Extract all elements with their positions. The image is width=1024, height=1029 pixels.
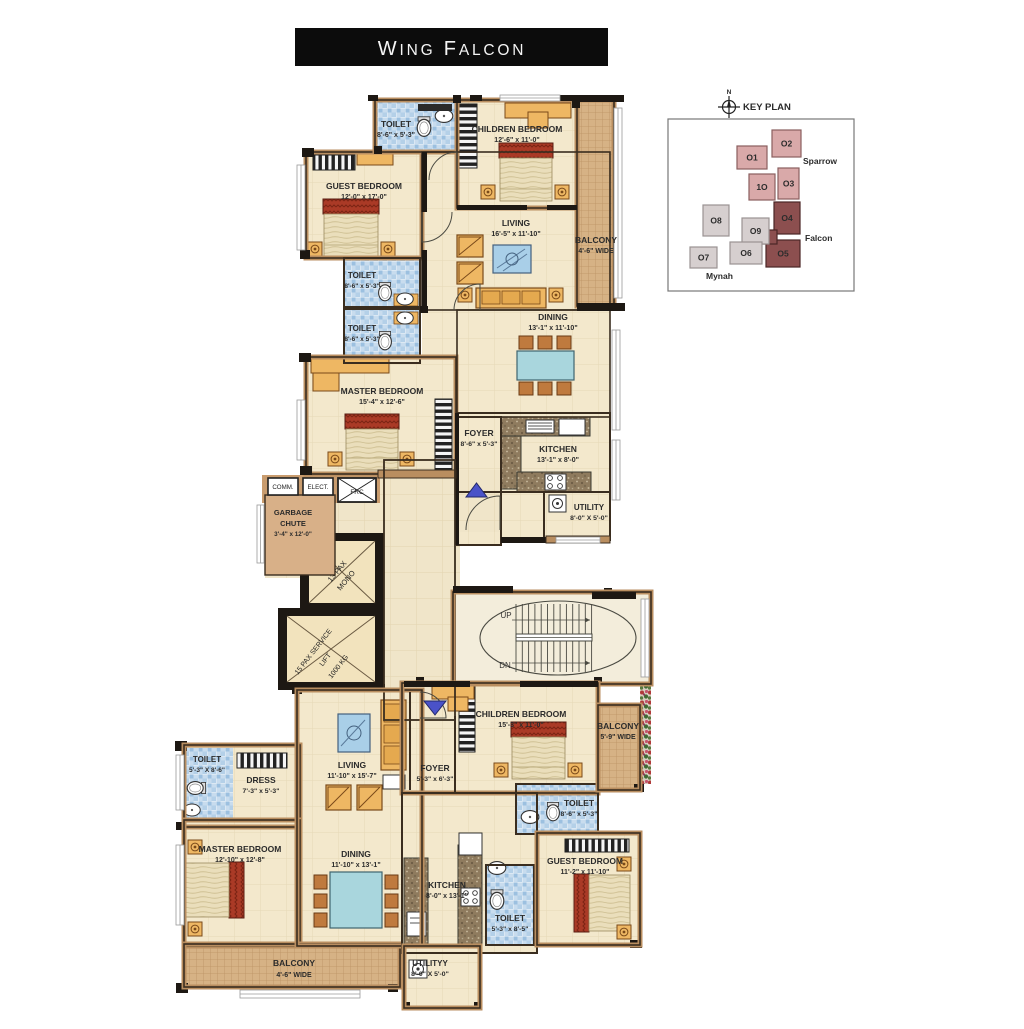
svg-text:LIVING: LIVING xyxy=(338,760,367,770)
svg-text:DINING: DINING xyxy=(341,849,371,859)
svg-text:TOILET: TOILET xyxy=(193,755,221,764)
svg-text:MASTER BEDROOM: MASTER BEDROOM xyxy=(341,386,424,396)
svg-text:FOYER: FOYER xyxy=(464,428,493,438)
svg-text:KEY PLAN: KEY PLAN xyxy=(743,102,791,113)
svg-text:UTILITY: UTILITY xyxy=(574,503,605,512)
svg-text:8'-0" x 13'-1": 8'-0" x 13'-1" xyxy=(426,893,468,900)
svg-text:O1: O1 xyxy=(746,153,758,163)
svg-text:FRC: FRC xyxy=(350,489,364,496)
svg-text:O6: O6 xyxy=(740,248,752,258)
svg-text:GUEST BEDROOM: GUEST BEDROOM xyxy=(547,856,623,866)
svg-text:11'-2" x 11'-10": 11'-2" x 11'-10" xyxy=(561,869,610,876)
svg-text:CHILDREN BEDROOM: CHILDREN BEDROOM xyxy=(472,124,563,134)
svg-text:15'-4" x 12'-6": 15'-4" x 12'-6" xyxy=(359,399,405,406)
svg-text:LIVING: LIVING xyxy=(502,218,531,228)
svg-text:11'-10" x 13'-1": 11'-10" x 13'-1" xyxy=(331,862,380,869)
svg-text:BALCONY: BALCONY xyxy=(575,235,617,245)
svg-text:TOILET: TOILET xyxy=(348,324,376,333)
svg-text:Falcon: Falcon xyxy=(805,233,832,243)
svg-text:8'-0" X 5'-0": 8'-0" X 5'-0" xyxy=(411,971,449,978)
svg-text:DRESS: DRESS xyxy=(246,775,276,785)
svg-text:KITCHEN: KITCHEN xyxy=(428,880,466,890)
svg-text:N: N xyxy=(727,89,732,96)
svg-text:DINING: DINING xyxy=(538,312,568,322)
svg-text:12'-6" x 11'-0": 12'-6" x 11'-0" xyxy=(494,137,539,144)
svg-text:8'-6" x 5'-3": 8'-6" x 5'-3" xyxy=(344,283,379,290)
svg-text:O4: O4 xyxy=(781,213,793,223)
svg-text:MASTER BEDROOM: MASTER BEDROOM xyxy=(199,844,282,854)
svg-text:FOYER: FOYER xyxy=(420,763,449,773)
svg-text:UTILITYY: UTILITYY xyxy=(412,959,448,968)
svg-text:O7: O7 xyxy=(698,253,710,263)
svg-text:7'-3" x 5'-3": 7'-3" x 5'-3" xyxy=(243,788,280,795)
svg-text:13'-1" x 11'-10": 13'-1" x 11'-10" xyxy=(528,325,577,332)
svg-text:8'-6" x 5'-3": 8'-6" x 5'-3" xyxy=(561,811,598,818)
svg-text:WING FALCON: WING FALCON xyxy=(378,38,526,60)
svg-text:16'-5" x 11'-10": 16'-5" x 11'-10" xyxy=(491,231,540,238)
svg-text:15'-3" x 11'-0": 15'-3" x 11'-0" xyxy=(498,722,543,729)
svg-text:11'-10" x 15'-7": 11'-10" x 15'-7" xyxy=(327,773,376,780)
svg-text:8'-6" x 5'-3": 8'-6" x 5'-3" xyxy=(377,132,415,139)
svg-text:8'-6" x 5'-3": 8'-6" x 5'-3" xyxy=(344,336,379,343)
svg-text:13'-1" x 8'-0": 13'-1" x 8'-0" xyxy=(537,457,579,464)
svg-text:5'-9" WIDE: 5'-9" WIDE xyxy=(600,734,636,741)
svg-text:4'-6" WIDE: 4'-6" WIDE xyxy=(578,248,614,255)
svg-text:CHUTE: CHUTE xyxy=(280,519,306,528)
svg-text:O5: O5 xyxy=(777,249,789,259)
svg-text:DN: DN xyxy=(499,661,511,670)
svg-text:BALCONY: BALCONY xyxy=(273,958,315,968)
svg-text:12'-0" x 17'-0": 12'-0" x 17'-0" xyxy=(341,194,387,201)
svg-text:GARBAGE: GARBAGE xyxy=(274,508,312,517)
svg-text:O2: O2 xyxy=(781,139,793,149)
svg-text:O3: O3 xyxy=(783,179,795,189)
svg-text:Sparrow: Sparrow xyxy=(803,156,837,166)
svg-text:TOILET: TOILET xyxy=(495,913,526,923)
svg-text:GUEST BEDROOM: GUEST BEDROOM xyxy=(326,181,402,191)
svg-text:3'-4" x 12'-0": 3'-4" x 12'-0" xyxy=(274,531,312,538)
svg-text:BALCONY: BALCONY xyxy=(597,721,639,731)
svg-text:ELECT.: ELECT. xyxy=(308,484,329,491)
svg-text:5'-3" x 6'-3": 5'-3" x 6'-3" xyxy=(417,776,454,783)
svg-text:5'-3" x 8'-5": 5'-3" x 8'-5" xyxy=(492,926,529,933)
svg-text:8'-0" X 5'-0": 8'-0" X 5'-0" xyxy=(570,515,608,522)
svg-text:12'-10" x 12'-8": 12'-10" x 12'-8" xyxy=(215,857,265,864)
svg-text:COMM.: COMM. xyxy=(272,484,294,491)
svg-text:5'-3" X 8'-6": 5'-3" X 8'-6" xyxy=(189,767,225,774)
svg-text:CHILDREN BEDROOM: CHILDREN BEDROOM xyxy=(476,709,567,719)
svg-text:TOILET: TOILET xyxy=(381,119,412,129)
svg-text:O9: O9 xyxy=(750,226,762,236)
svg-text:8'-6" x 5'-3": 8'-6" x 5'-3" xyxy=(461,441,498,448)
svg-text:TOILET: TOILET xyxy=(348,271,376,280)
svg-text:TOILET: TOILET xyxy=(564,798,595,808)
svg-text:4'-6" WIDE: 4'-6" WIDE xyxy=(276,972,312,979)
svg-text:O8: O8 xyxy=(710,216,722,226)
svg-text:Mynah: Mynah xyxy=(706,271,733,281)
svg-text:UP: UP xyxy=(500,611,511,620)
svg-text:1O: 1O xyxy=(756,182,768,192)
svg-text:KITCHEN: KITCHEN xyxy=(539,444,577,454)
